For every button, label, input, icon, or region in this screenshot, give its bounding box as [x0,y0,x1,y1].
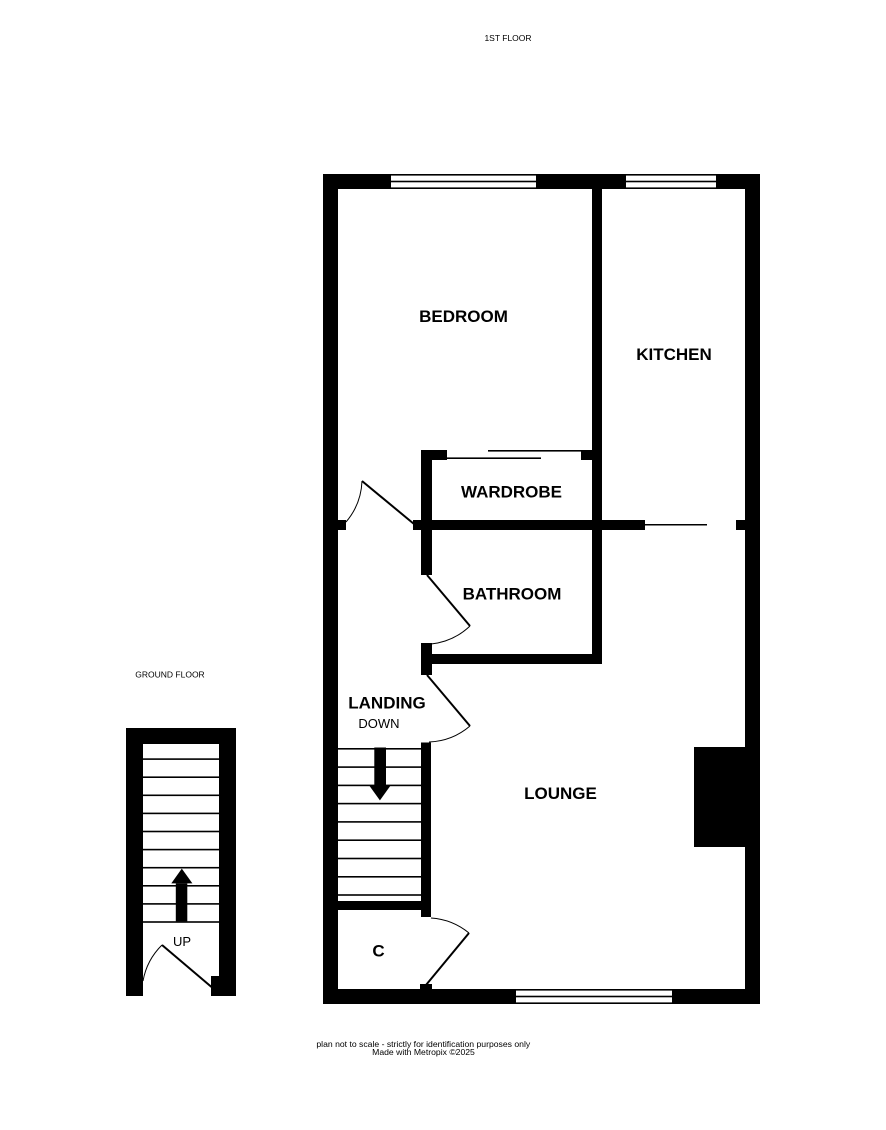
svg-text:WARDROBE: WARDROBE [461,483,562,502]
svg-text:BEDROOM: BEDROOM [419,307,508,326]
svg-text:Made with Metropix ©2025: Made with Metropix ©2025 [372,1047,475,1057]
svg-text:DOWN: DOWN [358,716,399,731]
svg-text:C: C [372,942,384,961]
svg-text:1ST FLOOR: 1ST FLOOR [484,33,531,43]
svg-text:KITCHEN: KITCHEN [636,345,712,364]
svg-text:LANDING: LANDING [348,694,425,713]
svg-text:BATHROOM: BATHROOM [463,585,562,604]
svg-text:UP: UP [173,934,191,949]
svg-text:LOUNGE: LOUNGE [524,784,597,803]
svg-text:GROUND FLOOR: GROUND FLOOR [135,670,204,680]
